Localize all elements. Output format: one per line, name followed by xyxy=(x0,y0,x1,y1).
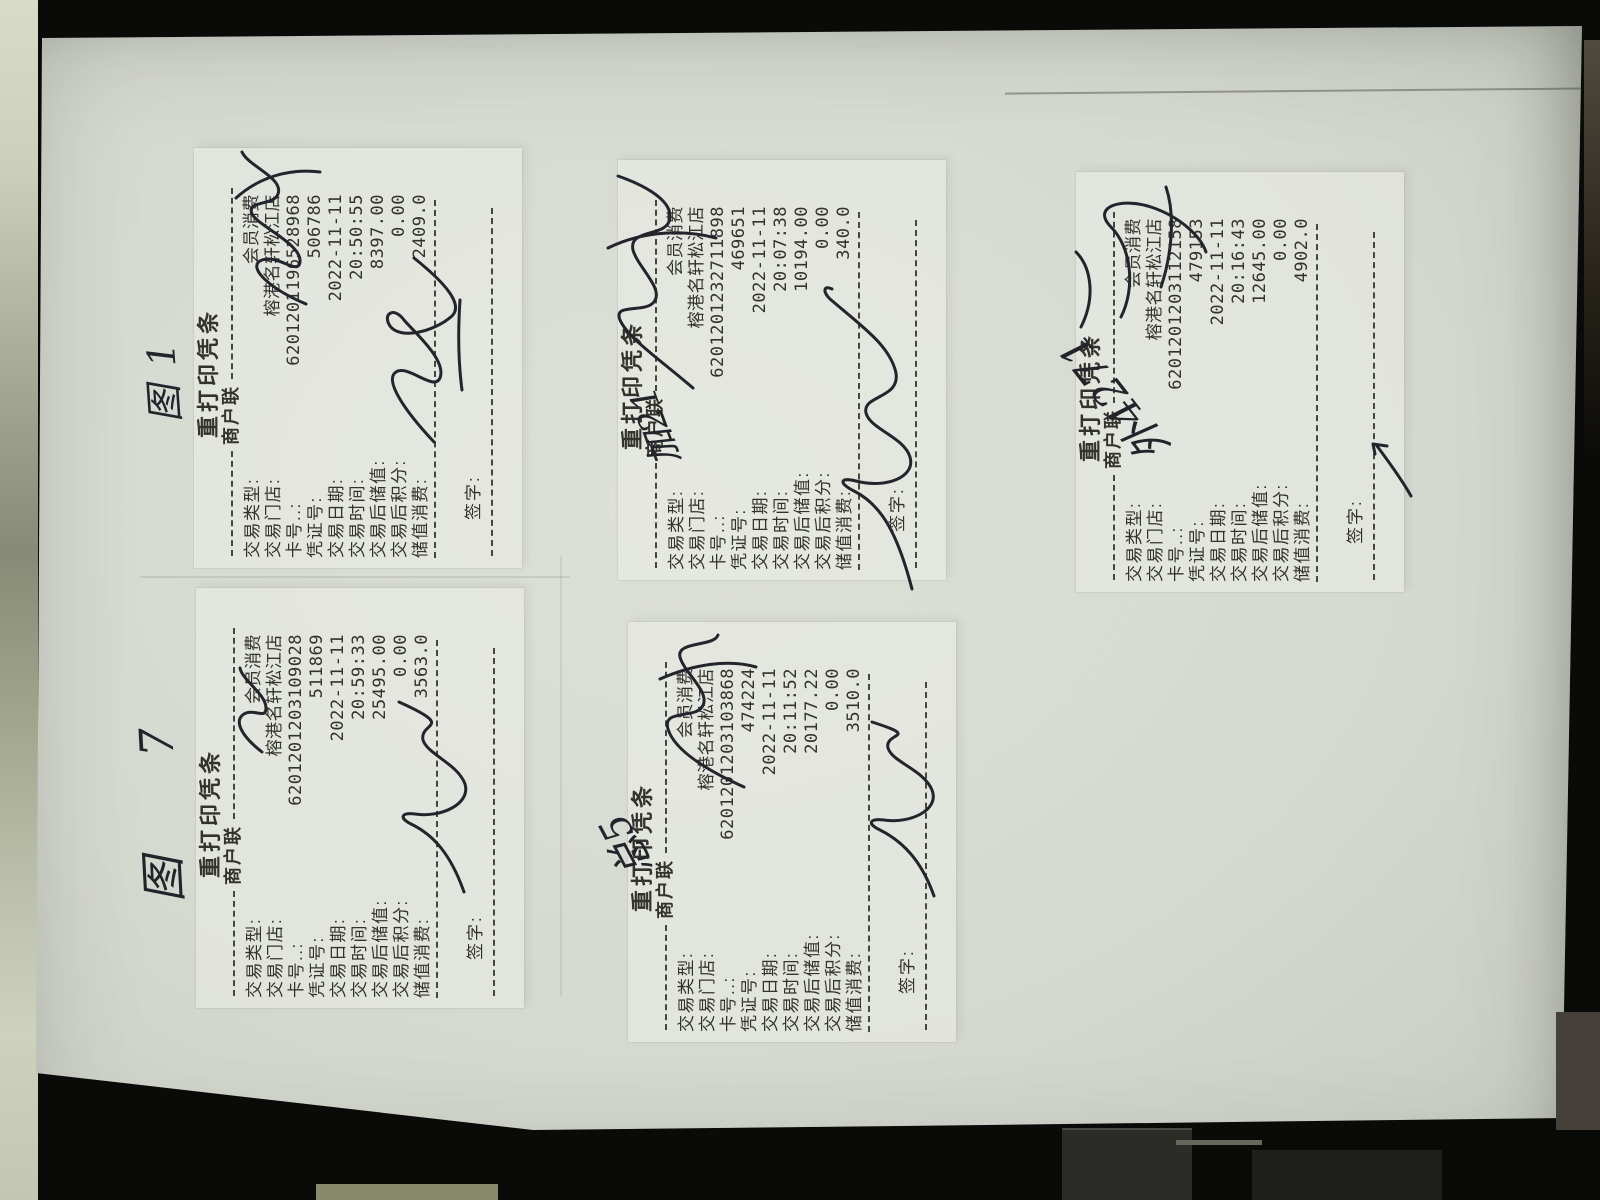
receipt-title: 重打印凭条 xyxy=(628,622,655,1042)
value-card-no: 6201201203103868 xyxy=(718,668,739,840)
label-date: 交易日期: xyxy=(328,918,349,998)
handwritten-tag: 加21 xyxy=(614,380,691,475)
label-points-after: 交易后积分: xyxy=(823,933,844,1032)
sign-label: 签字: xyxy=(465,588,486,1008)
label-card-no: 卡号..: xyxy=(708,514,729,570)
signature-line xyxy=(491,208,493,556)
label-balance-after: 交易后储值: xyxy=(370,899,391,998)
desk-object-strip xyxy=(316,1184,498,1200)
label-time: 交易时间: xyxy=(1229,502,1250,582)
photocopy-streak xyxy=(140,576,570,578)
dashed-separator xyxy=(434,200,436,558)
value-balance-after: 12645.00 xyxy=(1250,218,1271,304)
value-balance-after: 20177.22 xyxy=(802,668,823,754)
label-balance-after: 交易后储值: xyxy=(368,459,389,558)
sign-label: 签字: xyxy=(1345,172,1366,592)
value-type: 会员消费 xyxy=(1124,218,1145,288)
label-store: 交易门店: xyxy=(265,918,286,998)
receipt-2-body: 重打印凭条 商户联 交易类型:会员消费 交易门店:榕港名轩松江店 卡号..:62… xyxy=(618,160,946,580)
desk-object xyxy=(1062,1128,1192,1200)
label-stored-value-spent: 储值消费: xyxy=(834,490,855,570)
value-date: 2022-11-11 xyxy=(760,668,781,775)
dashed-separator xyxy=(868,674,870,1032)
value-time: 20:59:33 xyxy=(349,634,370,720)
receipt-5-body: 重打印凭条 商户联 交易类型:会员消费 交易门店:榕港名轩松江店 卡号..:62… xyxy=(628,622,956,1042)
label-date: 交易日期: xyxy=(326,478,347,558)
desk-object xyxy=(1252,1150,1442,1200)
handwritten-name xyxy=(1061,177,1211,347)
value-type: 会员消费 xyxy=(666,206,687,276)
value-balance-after: 25495.00 xyxy=(370,634,391,720)
photocopy-streak xyxy=(560,556,562,996)
value-stored-value-spent: 4902.0 xyxy=(1292,218,1313,282)
receipt-title: 重打印凭条 xyxy=(1076,172,1103,592)
copy-row: 商户联 xyxy=(1103,172,1124,592)
value-store: 榕港名轩松江店 xyxy=(687,206,708,329)
photo-scene: 重打印凭条 商户联 交易类型:会员消费 交易门店:榕港名轩松江店 卡号..:62… xyxy=(0,0,1600,1200)
value-points-after: 0.00 xyxy=(813,206,834,249)
sign-label: 签字: xyxy=(887,160,908,580)
label-points-after: 交易后积分: xyxy=(389,459,410,558)
label-date: 交易日期: xyxy=(1208,502,1229,582)
label-type: 交易类型: xyxy=(244,918,265,998)
value-time: 20:07:38 xyxy=(771,206,792,292)
value-time: 20:11:52 xyxy=(781,668,802,754)
label-store: 交易门店: xyxy=(1145,502,1166,582)
handwritten-signature xyxy=(374,250,470,450)
value-voucher-no: 474224 xyxy=(739,668,760,732)
copy-row: 商户联 xyxy=(645,160,666,580)
label-balance-after: 交易后储值: xyxy=(1250,483,1271,582)
label-balance-after: 交易后储值: xyxy=(802,933,823,1032)
handwritten-tag: 总5 xyxy=(582,805,664,890)
label-points-after: 交易后积分: xyxy=(813,471,834,570)
value-balance-after: 10194.00 xyxy=(792,206,813,292)
value-type: 会员消费 xyxy=(676,668,697,738)
handwritten-tag: 图7 xyxy=(115,626,195,904)
value-date: 2022-11-11 xyxy=(328,634,349,741)
label-voucher-no: 凭证号: xyxy=(307,936,328,998)
receipt-title: 重打印凭条 xyxy=(194,148,221,568)
dashed-separator xyxy=(858,212,860,570)
value-store: 榕港名轩松江店 xyxy=(1145,218,1166,341)
receipt-1: 重打印凭条 商户联 交易类型:会员消费 交易门店:榕港名轩松江店 卡号..:62… xyxy=(194,148,522,568)
value-card-no: 6201201196528968 xyxy=(284,194,305,366)
value-date: 2022-11-11 xyxy=(750,206,771,313)
label-type: 交易类型: xyxy=(242,478,263,558)
handwritten-signature xyxy=(820,275,932,595)
handwritten-signature xyxy=(379,695,479,900)
label-voucher-no: 凭证号: xyxy=(1187,520,1208,582)
copy-row: 商户联 xyxy=(221,148,242,568)
desk-edge-strip xyxy=(0,0,38,1200)
value-time: 20:16:43 xyxy=(1229,218,1250,304)
value-points-after: 0.00 xyxy=(1271,218,1292,261)
label-type: 交易类型: xyxy=(1124,502,1145,582)
value-points-after: 0.00 xyxy=(391,634,412,677)
label-type: 交易类型: xyxy=(676,952,697,1032)
label-voucher-no: 凭证号: xyxy=(305,496,326,558)
value-balance-after: 8397.00 xyxy=(368,194,389,269)
dashed-separator xyxy=(1316,224,1318,582)
label-time: 交易时间: xyxy=(771,490,792,570)
value-time: 20:50:55 xyxy=(347,194,368,280)
handwritten-tag: 外4271 xyxy=(1042,322,1182,477)
handwritten-name xyxy=(598,173,723,398)
label-points-after: 交易后积分: xyxy=(391,899,412,998)
receipt-title: 重打印凭条 xyxy=(618,160,645,580)
receipt-title: 重打印凭条 xyxy=(196,588,223,1008)
handwritten-signature xyxy=(1371,437,1416,502)
label-card-no: 卡号..: xyxy=(286,942,307,998)
label-time: 交易时间: xyxy=(349,918,370,998)
signature-line xyxy=(493,648,495,996)
value-stored-value-spent: 3510.0 xyxy=(844,668,865,732)
receipt-3-body: 重打印凭条 商户联 交易类型:会员消费 交易门店:榕港名轩松江店 卡号..:62… xyxy=(1076,172,1404,592)
label-type: 交易类型: xyxy=(666,490,687,570)
sign-label: 签字: xyxy=(897,622,918,1042)
label-stored-value-spent: 储值消费: xyxy=(412,918,433,998)
copy-row: 商户联 xyxy=(223,588,244,1008)
photocopy-streak xyxy=(1005,87,1600,94)
handwritten-signature xyxy=(842,717,948,902)
copy-label: 商户联 xyxy=(223,825,244,885)
copy-row: 商户联 xyxy=(655,622,676,1042)
label-stored-value-spent: 储值消费: xyxy=(410,478,431,558)
label-time: 交易时间: xyxy=(781,952,802,1032)
value-type: 会员消费 xyxy=(244,634,265,704)
value-card-no: 6201201203109028 xyxy=(286,634,307,806)
label-voucher-no: 凭证号: xyxy=(729,508,750,570)
value-store: 榕港名轩松江店 xyxy=(263,194,284,317)
value-voucher-no: 506786 xyxy=(305,194,326,258)
handwritten-tag: 图1 xyxy=(129,323,191,425)
label-date: 交易日期: xyxy=(750,490,771,570)
copy-label: 商户联 xyxy=(645,397,666,457)
signature-line xyxy=(925,682,927,1030)
value-type: 会员消费 xyxy=(242,194,263,264)
receipt-5: 重打印凭条 商户联 交易类型:会员消费 交易门店:榕港名轩松江店 卡号..:62… xyxy=(628,622,956,1042)
desk-object xyxy=(1556,1012,1600,1130)
sign-label: 签字: xyxy=(463,148,484,568)
receipt-2: 重打印凭条 商户联 交易类型:会员消费 交易门店:榕港名轩松江店 卡号..:62… xyxy=(618,160,946,580)
value-stored-value-spent: 340.0 xyxy=(834,206,855,260)
value-points-after: 0.00 xyxy=(823,668,844,711)
copy-label: 商户联 xyxy=(221,385,242,445)
receipt-1-body: 重打印凭条 商户联 交易类型:会员消费 交易门店:榕港名轩松江店 卡号..:62… xyxy=(194,148,522,568)
handwritten-name xyxy=(222,660,270,760)
receipt-4: 重打印凭条 商户联 交易类型:会员消费 交易门店:榕港名轩松江店 卡号..:62… xyxy=(196,588,524,1008)
label-store: 交易门店: xyxy=(697,952,718,1032)
label-stored-value-spent: 储值消费: xyxy=(1292,502,1313,582)
label-date: 交易日期: xyxy=(760,952,781,1032)
label-voucher-no: 凭证号: xyxy=(739,970,760,1032)
dashed-separator xyxy=(436,640,438,998)
copy-label: 商户联 xyxy=(655,859,676,919)
label-card-no: 卡号..: xyxy=(718,976,739,1032)
signature-line xyxy=(1373,232,1375,580)
value-voucher-no: 469651 xyxy=(729,206,750,270)
value-store: 榕港名轩松江店 xyxy=(265,634,286,757)
value-date: 2022-11-11 xyxy=(326,194,347,301)
paper-sheet: 重打印凭条 商户联 交易类型:会员消费 交易门店:榕港名轩松江店 卡号..:62… xyxy=(0,0,1600,1200)
desk-object-highlight xyxy=(1176,1140,1262,1145)
receipt-4-body: 重打印凭条 商户联 交易类型:会员消费 交易门店:榕港名轩松江店 卡号..:62… xyxy=(196,588,524,1008)
value-stored-value-spent: 2409.0 xyxy=(410,194,431,258)
copy-label: 商户联 xyxy=(1103,409,1124,469)
value-card-no: 6201201232711898 xyxy=(708,206,729,378)
label-store: 交易门店: xyxy=(687,490,708,570)
value-voucher-no: 479153 xyxy=(1187,218,1208,282)
label-balance-after: 交易后储值: xyxy=(792,471,813,570)
value-card-no: 6201201203112158 xyxy=(1166,218,1187,390)
signature-line xyxy=(915,220,917,568)
value-store: 榕港名轩松江店 xyxy=(697,668,718,791)
value-points-after: 0.00 xyxy=(389,194,410,237)
value-date: 2022-11-11 xyxy=(1208,218,1229,325)
handwritten-name xyxy=(654,629,760,799)
value-stored-value-spent: 3563.0 xyxy=(412,634,433,698)
label-store: 交易门店: xyxy=(263,478,284,558)
handwritten-name xyxy=(228,150,332,318)
label-card-no: 卡号..: xyxy=(1166,526,1187,582)
receipt-3: 重打印凭条 商户联 交易类型:会员消费 交易门店:榕港名轩松江店 卡号..:62… xyxy=(1076,172,1404,592)
label-stored-value-spent: 储值消费: xyxy=(844,952,865,1032)
label-card-no: 卡号..: xyxy=(284,502,305,558)
value-voucher-no: 511869 xyxy=(307,634,328,698)
label-points-after: 交易后积分: xyxy=(1271,483,1292,582)
label-time: 交易时间: xyxy=(347,478,368,558)
desk-right-edge xyxy=(1584,40,1600,460)
